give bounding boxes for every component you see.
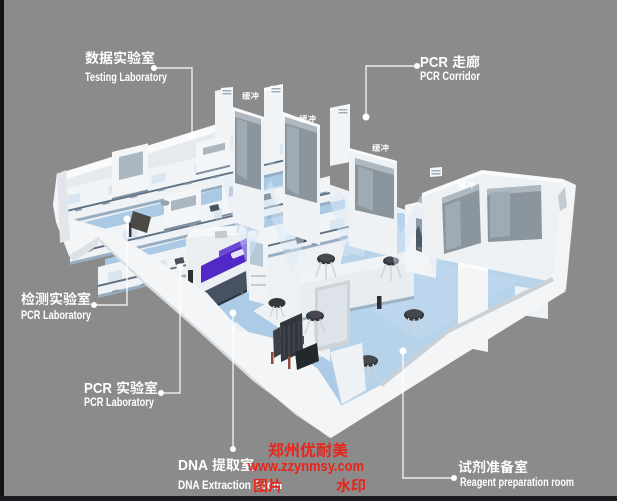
- svg-text:Reagent preparation room: Reagent preparation room: [460, 477, 574, 489]
- svg-text:www.zzynmsy.com: www.zzynmsy.com: [247, 458, 364, 475]
- svg-text:PCR: PCR: [420, 54, 448, 71]
- svg-text:Testing Laboratory: Testing Laboratory: [85, 72, 167, 84]
- svg-text:PCR Laboratory: PCR Laboratory: [84, 397, 154, 409]
- svg-text:PCR: PCR: [84, 380, 112, 397]
- svg-text:PCR Laboratory: PCR Laboratory: [21, 310, 91, 322]
- svg-text:PCR Corridor: PCR Corridor: [420, 71, 480, 83]
- svg-text:DNA: DNA: [178, 457, 208, 474]
